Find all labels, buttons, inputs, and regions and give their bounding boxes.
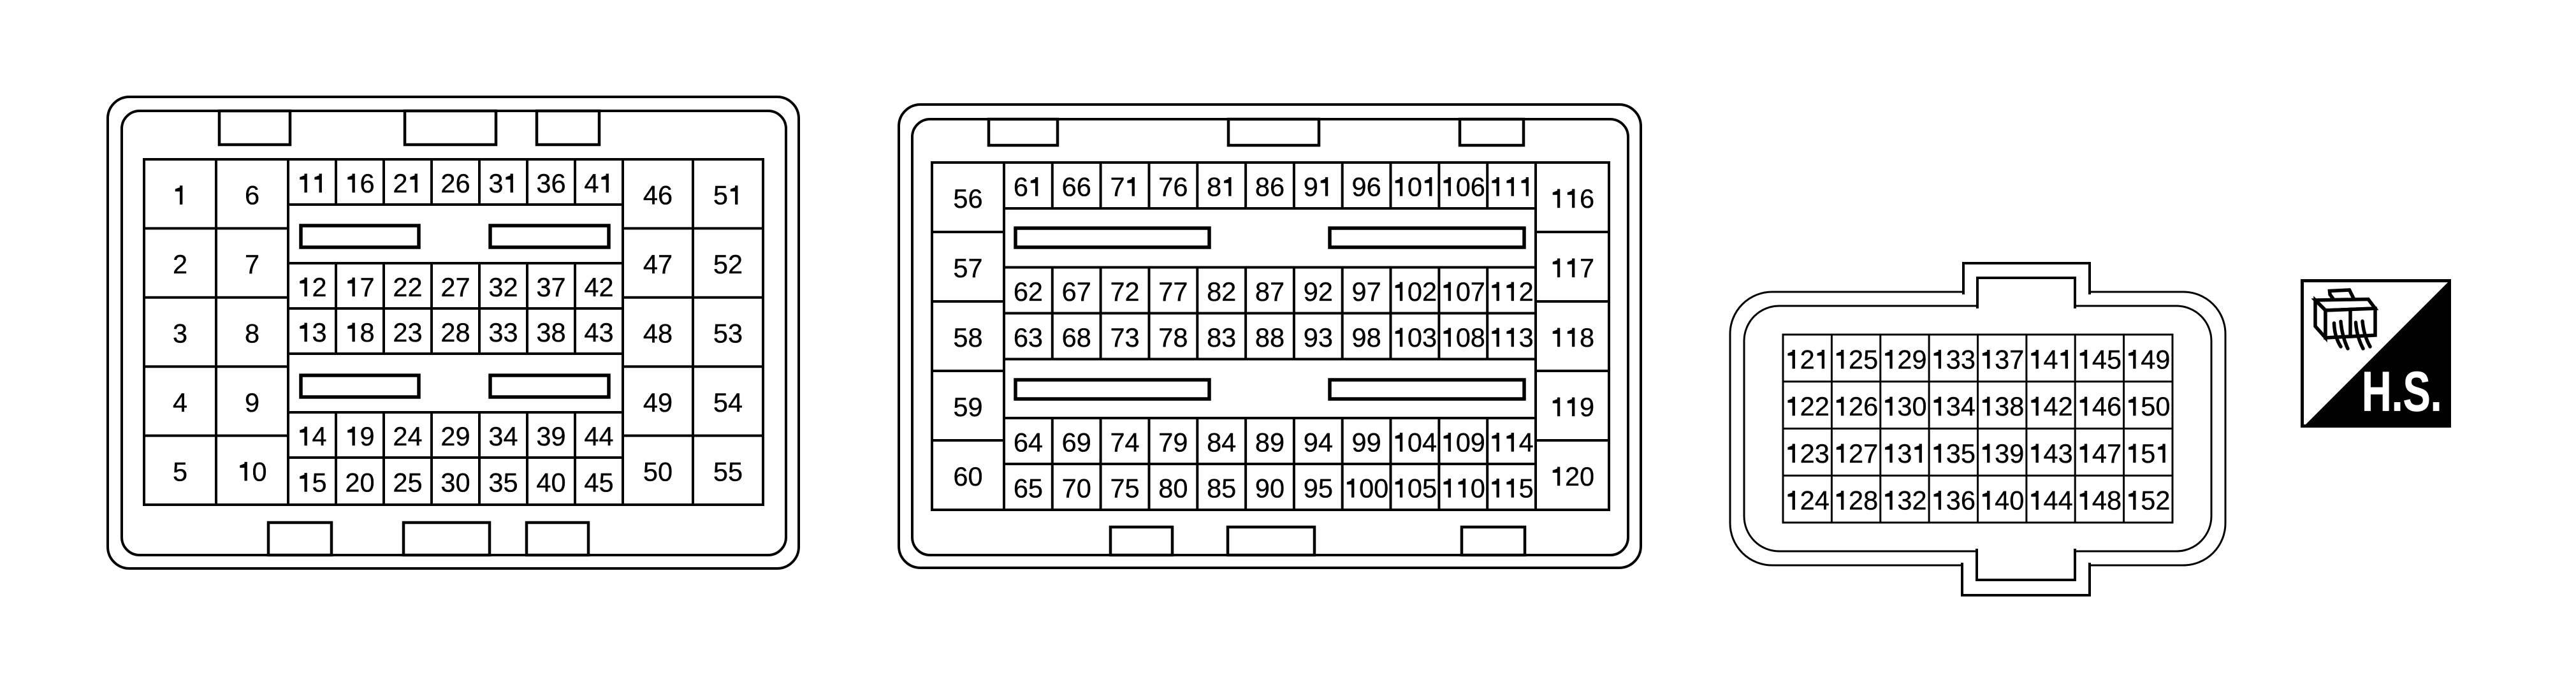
svg-text:39: 39 bbox=[1995, 438, 2024, 468]
svg-text:62: 62 bbox=[1014, 277, 1043, 307]
svg-text:8: 8 bbox=[1580, 322, 1594, 352]
svg-text:42: 42 bbox=[584, 272, 613, 302]
svg-text:45: 45 bbox=[2092, 344, 2121, 374]
svg-text:7: 7 bbox=[360, 272, 375, 302]
svg-text:34: 34 bbox=[1946, 391, 1976, 421]
svg-text:52: 52 bbox=[2141, 486, 2170, 516]
svg-text:42: 42 bbox=[2044, 391, 2073, 421]
svg-text:52: 52 bbox=[713, 249, 743, 279]
svg-text:8: 8 bbox=[245, 319, 259, 349]
svg-text:36: 36 bbox=[536, 168, 565, 198]
svg-text:5: 5 bbox=[1519, 474, 1534, 503]
svg-text:6: 6 bbox=[360, 168, 375, 198]
svg-text:20: 20 bbox=[1565, 461, 1594, 491]
svg-text:50: 50 bbox=[2141, 391, 2170, 421]
svg-text:44: 44 bbox=[2044, 486, 2073, 516]
svg-text:60: 60 bbox=[953, 461, 982, 491]
svg-text:49: 49 bbox=[2141, 344, 2170, 374]
svg-text:67: 67 bbox=[1062, 277, 1091, 307]
svg-text:57: 57 bbox=[953, 253, 982, 283]
svg-text:73: 73 bbox=[1110, 322, 1139, 352]
svg-text:88: 88 bbox=[1255, 322, 1284, 352]
svg-text:35: 35 bbox=[1946, 438, 1976, 468]
svg-text:30: 30 bbox=[440, 468, 470, 498]
svg-text:33: 33 bbox=[1946, 344, 1976, 374]
svg-text:79: 79 bbox=[1158, 428, 1188, 458]
svg-text:50: 50 bbox=[643, 456, 673, 486]
svg-text:84: 84 bbox=[1207, 428, 1236, 458]
svg-text:0: 0 bbox=[1408, 172, 1422, 202]
svg-text:7: 7 bbox=[245, 249, 259, 279]
svg-text:93: 93 bbox=[1304, 322, 1333, 352]
svg-text:7: 7 bbox=[1110, 172, 1124, 202]
svg-text:47: 47 bbox=[2092, 438, 2121, 468]
svg-text:8: 8 bbox=[1207, 172, 1221, 202]
svg-text:72: 72 bbox=[1110, 277, 1139, 307]
svg-text:5: 5 bbox=[713, 180, 728, 210]
svg-text:98: 98 bbox=[1352, 322, 1381, 352]
svg-text:09: 09 bbox=[1456, 428, 1485, 458]
svg-text:29: 29 bbox=[1897, 344, 1926, 374]
svg-text:32: 32 bbox=[488, 272, 518, 302]
svg-text:2: 2 bbox=[1800, 344, 1815, 374]
svg-text:22: 22 bbox=[393, 272, 422, 302]
svg-text:9: 9 bbox=[245, 387, 259, 417]
svg-text:3: 3 bbox=[488, 168, 503, 198]
svg-text:55: 55 bbox=[713, 456, 743, 486]
svg-text:44: 44 bbox=[584, 421, 613, 451]
svg-text:2: 2 bbox=[173, 249, 187, 279]
svg-text:95: 95 bbox=[1304, 474, 1333, 503]
svg-text:76: 76 bbox=[1158, 172, 1188, 202]
svg-text:28: 28 bbox=[1849, 486, 1878, 516]
svg-text:02: 02 bbox=[1408, 277, 1437, 307]
svg-text:53: 53 bbox=[713, 319, 743, 349]
svg-text:7: 7 bbox=[1580, 253, 1594, 283]
svg-text:25: 25 bbox=[393, 468, 422, 498]
svg-text:37: 37 bbox=[536, 272, 565, 302]
svg-text:64: 64 bbox=[1014, 428, 1043, 458]
svg-text:28: 28 bbox=[440, 317, 470, 347]
svg-text:27: 27 bbox=[1849, 438, 1878, 468]
svg-text:87: 87 bbox=[1255, 277, 1284, 307]
svg-text:66: 66 bbox=[1062, 172, 1091, 202]
svg-text:70: 70 bbox=[1062, 474, 1091, 503]
svg-text:03: 03 bbox=[1408, 322, 1437, 352]
svg-text:29: 29 bbox=[440, 421, 470, 451]
svg-text:22: 22 bbox=[1800, 391, 1830, 421]
svg-text:75: 75 bbox=[1110, 474, 1139, 503]
svg-text:36: 36 bbox=[1946, 486, 1976, 516]
svg-text:48: 48 bbox=[2092, 486, 2121, 516]
svg-text:33: 33 bbox=[488, 317, 518, 347]
svg-text:0: 0 bbox=[1471, 474, 1485, 503]
svg-text:83: 83 bbox=[1207, 322, 1236, 352]
svg-text:0: 0 bbox=[252, 456, 267, 486]
svg-text:38: 38 bbox=[536, 317, 565, 347]
svg-text:96: 96 bbox=[1352, 172, 1381, 202]
svg-text:3: 3 bbox=[173, 319, 187, 349]
svg-text:26: 26 bbox=[440, 168, 470, 198]
svg-text:24: 24 bbox=[1800, 486, 1830, 516]
svg-text:4: 4 bbox=[312, 421, 327, 451]
svg-text:23: 23 bbox=[1800, 438, 1830, 468]
svg-text:48: 48 bbox=[643, 319, 673, 349]
svg-text:06: 06 bbox=[1456, 172, 1485, 202]
svg-text:99: 99 bbox=[1352, 428, 1381, 458]
svg-text:63: 63 bbox=[1014, 322, 1043, 352]
svg-text:80: 80 bbox=[1158, 474, 1188, 503]
svg-text:94: 94 bbox=[1304, 428, 1333, 458]
svg-text:4: 4 bbox=[584, 168, 599, 198]
svg-text:5: 5 bbox=[312, 468, 327, 498]
svg-text:6: 6 bbox=[1580, 184, 1594, 213]
svg-text:35: 35 bbox=[488, 468, 518, 498]
svg-text:20: 20 bbox=[345, 468, 374, 498]
svg-text:8: 8 bbox=[360, 317, 375, 347]
svg-text:46: 46 bbox=[643, 180, 673, 210]
svg-text:92: 92 bbox=[1304, 277, 1333, 307]
svg-text:25: 25 bbox=[1849, 344, 1878, 374]
svg-text:86: 86 bbox=[1255, 172, 1284, 202]
svg-text:2: 2 bbox=[1519, 277, 1534, 307]
svg-text:2: 2 bbox=[393, 168, 407, 198]
svg-text:3: 3 bbox=[1897, 438, 1912, 468]
svg-text:43: 43 bbox=[584, 317, 613, 347]
svg-text:39: 39 bbox=[536, 421, 565, 451]
svg-text:37: 37 bbox=[1995, 344, 2024, 374]
svg-text:4: 4 bbox=[1519, 428, 1534, 458]
svg-text:9: 9 bbox=[1580, 392, 1594, 422]
svg-text:68: 68 bbox=[1062, 322, 1091, 352]
svg-text:97: 97 bbox=[1352, 277, 1381, 307]
svg-text:49: 49 bbox=[643, 387, 673, 417]
svg-text:74: 74 bbox=[1110, 428, 1139, 458]
svg-text:4: 4 bbox=[2044, 344, 2058, 374]
svg-text:30: 30 bbox=[1897, 391, 1926, 421]
svg-text:H.S.: H.S. bbox=[2362, 361, 2442, 423]
svg-text:6: 6 bbox=[245, 180, 259, 210]
svg-text:08: 08 bbox=[1456, 322, 1485, 352]
svg-text:47: 47 bbox=[643, 249, 673, 279]
svg-text:32: 32 bbox=[1897, 486, 1926, 516]
svg-text:59: 59 bbox=[953, 392, 982, 422]
svg-text:9: 9 bbox=[1304, 172, 1318, 202]
svg-text:77: 77 bbox=[1158, 277, 1188, 307]
svg-text:5: 5 bbox=[173, 456, 187, 486]
svg-text:40: 40 bbox=[536, 468, 565, 498]
svg-text:27: 27 bbox=[440, 272, 470, 302]
svg-text:85: 85 bbox=[1207, 474, 1236, 503]
svg-text:45: 45 bbox=[584, 468, 613, 498]
svg-text:43: 43 bbox=[2044, 438, 2073, 468]
svg-text:9: 9 bbox=[360, 421, 375, 451]
svg-text:82: 82 bbox=[1207, 277, 1236, 307]
svg-text:2: 2 bbox=[312, 272, 327, 302]
svg-text:78: 78 bbox=[1158, 322, 1188, 352]
svg-text:54: 54 bbox=[713, 387, 743, 417]
svg-text:34: 34 bbox=[488, 421, 518, 451]
svg-text:56: 56 bbox=[953, 184, 982, 213]
svg-text:3: 3 bbox=[1519, 322, 1534, 352]
svg-text:89: 89 bbox=[1255, 428, 1284, 458]
svg-text:58: 58 bbox=[953, 322, 982, 352]
svg-text:46: 46 bbox=[2092, 391, 2121, 421]
svg-text:4: 4 bbox=[173, 387, 187, 417]
svg-text:05: 05 bbox=[1408, 474, 1437, 503]
svg-text:69: 69 bbox=[1062, 428, 1091, 458]
svg-text:38: 38 bbox=[1995, 391, 2024, 421]
svg-text:24: 24 bbox=[393, 421, 422, 451]
svg-text:07: 07 bbox=[1456, 277, 1485, 307]
svg-text:3: 3 bbox=[312, 317, 327, 347]
svg-text:65: 65 bbox=[1014, 474, 1043, 503]
svg-text:90: 90 bbox=[1255, 474, 1284, 503]
svg-text:5: 5 bbox=[2141, 438, 2155, 468]
svg-text:00: 00 bbox=[1359, 474, 1388, 503]
svg-text:6: 6 bbox=[1014, 172, 1028, 202]
svg-text:04: 04 bbox=[1408, 428, 1437, 458]
svg-text:40: 40 bbox=[1995, 486, 2024, 516]
svg-text:23: 23 bbox=[393, 317, 422, 347]
svg-text:26: 26 bbox=[1849, 391, 1878, 421]
